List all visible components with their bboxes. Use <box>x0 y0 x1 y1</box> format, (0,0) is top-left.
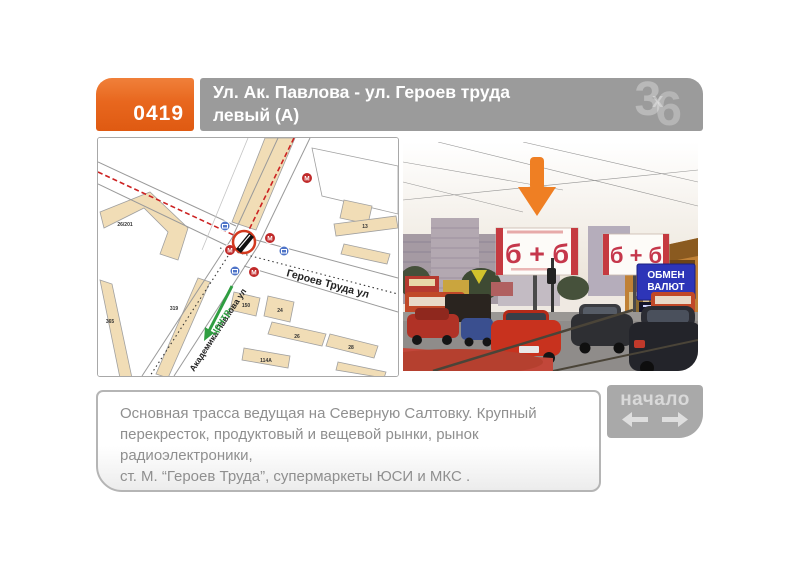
header-bar: Ул. Ак. Павлова - ул. Героев труда левый… <box>200 78 703 131</box>
pager: начало <box>607 385 703 438</box>
description-line: ст. М. “Героев Труда”, супермаркеты ЮСИ … <box>120 466 583 487</box>
left-arrow-icon <box>622 412 648 427</box>
description-box: Основная трасса ведущая на Северную Салт… <box>96 390 601 492</box>
right-arrow-icon <box>662 412 688 427</box>
building-number: 365 <box>106 319 115 325</box>
map-image: Героев Труда ул Академика Павлова ул цен… <box>98 138 398 376</box>
agency-3x6-logo: 3х6 <box>634 76 699 124</box>
metro-letter: М <box>251 270 256 277</box>
location-photo: б + б б + б ОБМЕН ВАЛЮТ <box>403 142 698 371</box>
billboard-ad-text: б + б <box>505 239 569 269</box>
description-text: Основная трасса ведущая на Северную Салт… <box>98 392 599 487</box>
traffic-light-icon <box>547 268 556 284</box>
next-button[interactable] <box>662 412 688 427</box>
description-line: перекресток, продуктовый и вещевой рынки… <box>120 424 583 466</box>
building-number: 13 <box>362 224 368 230</box>
metro-letter: М <box>304 176 309 183</box>
pager-label: начало <box>607 389 703 411</box>
location-map: Героев Труда ул Академика Павлова ул цен… <box>97 137 399 377</box>
location-card: 0419 Ул. Ак. Павлова - ул. Героев труда … <box>0 0 800 563</box>
title-line-1: Ул. Ак. Павлова - ул. Героев труда <box>213 81 510 104</box>
metro-letter: М <box>227 248 232 255</box>
building-number: 24 <box>277 308 283 314</box>
description-line: Основная трасса ведущая на Северную Салт… <box>120 403 583 424</box>
building-number: 114А <box>260 358 272 364</box>
building-number: 26/201 <box>117 222 133 228</box>
exchange-text-1: ОБМЕН <box>647 270 684 281</box>
logo-digit-6: 6 <box>655 83 682 136</box>
metro-letter: М <box>267 236 272 243</box>
building-number: 28 <box>348 345 354 351</box>
trolleybus-stop-icon <box>279 246 289 256</box>
photo-image: б + б б + б ОБМЕН ВАЛЮТ <box>403 142 698 371</box>
trolleybus-stop-icon <box>220 221 230 231</box>
location-code-badge: 0419 <box>96 78 194 131</box>
prev-button[interactable] <box>622 412 648 427</box>
billboard-marker-icon <box>233 231 255 253</box>
building-number: 319 <box>170 306 179 312</box>
title-line-2: левый (А) <box>213 104 510 127</box>
building-number: 26 <box>294 334 300 340</box>
building-number: 150 <box>242 303 251 309</box>
page-title: Ул. Ак. Павлова - ул. Героев труда левый… <box>213 81 510 127</box>
trolleybus-stop-icon <box>230 266 240 276</box>
location-code: 0419 <box>133 102 184 126</box>
exchange-text-2: ВАЛЮТ <box>647 282 684 293</box>
